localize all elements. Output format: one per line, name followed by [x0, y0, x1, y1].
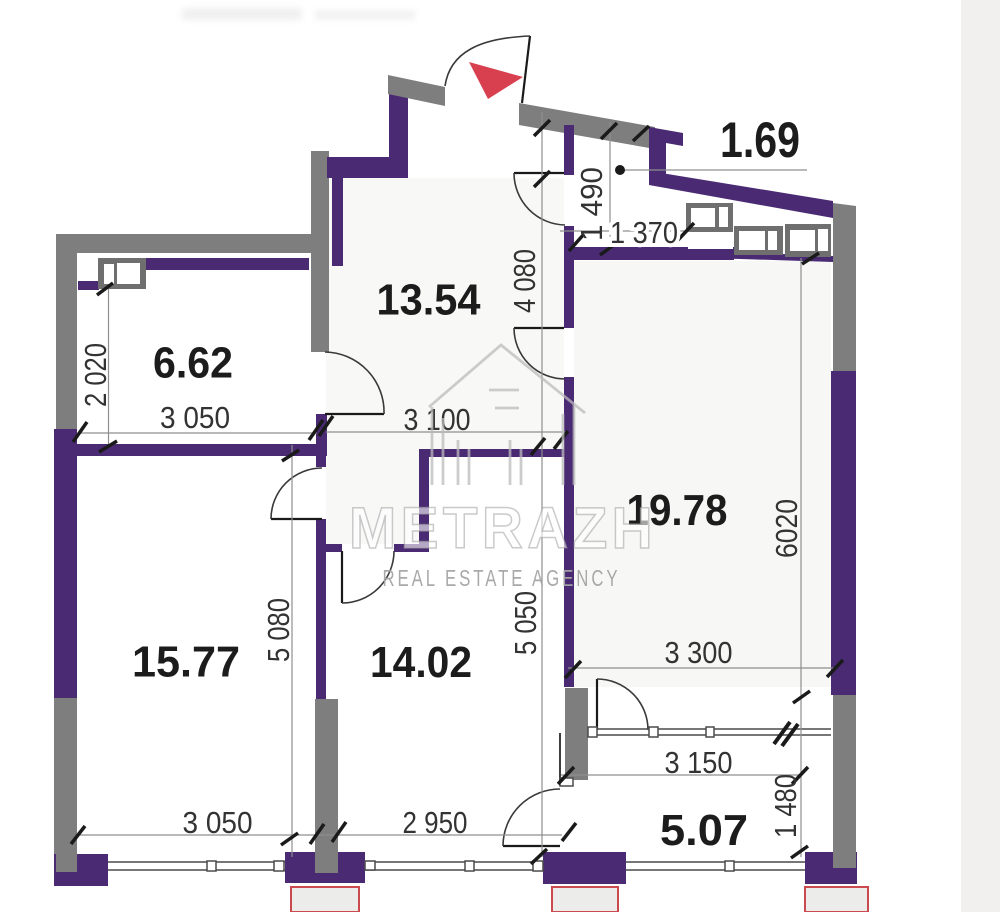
svg-text:REAL ESTATE AGENCY: REAL ESTATE AGENCY [383, 565, 621, 591]
svg-text:1 370: 1 370 [610, 215, 678, 250]
svg-text:14.02: 14.02 [370, 638, 472, 687]
svg-text:4 080: 4 080 [507, 249, 542, 313]
svg-text:METRAZH: METRAZH [349, 496, 657, 561]
svg-text:13.54: 13.54 [377, 276, 481, 325]
svg-text:1 490: 1 490 [574, 167, 609, 241]
svg-text:15.77: 15.77 [132, 638, 240, 687]
svg-text:3 100: 3 100 [404, 402, 471, 437]
svg-text:5 080: 5 080 [261, 598, 296, 662]
svg-text:2 020: 2 020 [78, 343, 113, 407]
svg-text:6.62: 6.62 [153, 339, 233, 388]
svg-text:6020: 6020 [769, 499, 804, 558]
svg-text:3 050: 3 050 [183, 805, 253, 840]
svg-text:3 300: 3 300 [665, 635, 733, 670]
svg-text:3 150: 3 150 [665, 745, 733, 780]
svg-text:5.07: 5.07 [660, 806, 748, 855]
svg-text:2 950: 2 950 [403, 805, 468, 840]
svg-text:5 050: 5 050 [508, 591, 543, 655]
svg-text:1 480: 1 480 [768, 774, 803, 838]
svg-text:1.69: 1.69 [720, 112, 800, 168]
svg-text:3 050: 3 050 [160, 400, 230, 435]
